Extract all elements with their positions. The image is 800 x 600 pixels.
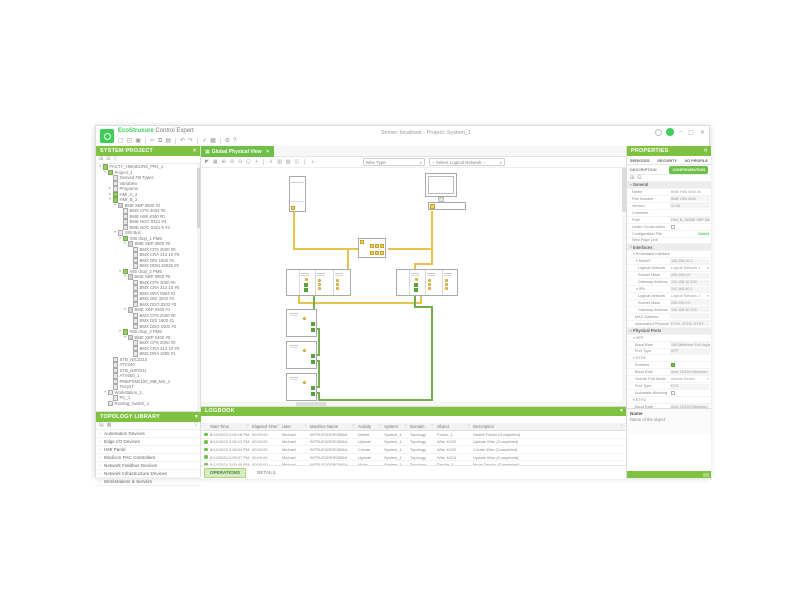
property-value: 192.168.40.100 bbox=[670, 307, 710, 312]
ethernet-wire[interactable] bbox=[431, 211, 433, 265]
library-item[interactable]: ›Network Fieldbus Devices bbox=[96, 462, 201, 470]
filter-icon[interactable]: ▽ bbox=[378, 424, 381, 429]
layout-icon[interactable]: ◫ bbox=[295, 159, 300, 166]
export-icon[interactable]: ⇓ bbox=[269, 159, 273, 166]
column-header[interactable]: Elapsed Time▽ bbox=[252, 424, 282, 429]
app-brand: EcoStruxure bbox=[118, 128, 154, 134]
io-channel[interactable] bbox=[445, 279, 448, 282]
logbook-cell: WTRUS3GER0506A bbox=[310, 439, 358, 444]
property-row[interactable]: NameBME H58 4040 #0 bbox=[627, 189, 711, 196]
property-row[interactable]: ▾SFP bbox=[627, 335, 711, 342]
logbook-row[interactable]: 8/14/2024 2:06:18 PM00:00:00MichaelWTRUS… bbox=[201, 431, 626, 439]
property-row[interactable]: PathHMI_B_2\BME XBP 0800 #2 bbox=[627, 217, 711, 224]
chevron-down-icon: ▾ bbox=[707, 377, 709, 381]
logbook-cell: Create bbox=[358, 447, 384, 452]
logbook-column-headers: Start Time▽Elapsed Time▽User▽Machine Nam… bbox=[201, 423, 626, 431]
ethernet-wire[interactable] bbox=[293, 210, 295, 250]
io-channel[interactable] bbox=[428, 287, 431, 290]
logbook-cell: Michael bbox=[282, 447, 310, 452]
print-icon[interactable]: ▥ bbox=[277, 159, 282, 166]
property-label: Physical Ports bbox=[633, 328, 661, 333]
filter-icon[interactable]: ▽ bbox=[431, 424, 434, 429]
logbook-collapse-icon[interactable]: ▾ bbox=[620, 407, 623, 416]
info-status-icon bbox=[204, 433, 208, 437]
rio-port[interactable] bbox=[414, 283, 418, 287]
tree-expander-icon[interactable]: ▾ bbox=[123, 335, 127, 341]
property-value: 192.168.10.1 bbox=[670, 259, 710, 264]
rio-ring-wire[interactable] bbox=[431, 306, 433, 401]
library-item[interactable]: ›Network Infrastructure Devices bbox=[96, 470, 201, 478]
column-header[interactable]: Machine Name▽ bbox=[310, 424, 358, 429]
schneider-logo-icon bbox=[100, 129, 114, 143]
minimize-button[interactable]: – bbox=[678, 129, 683, 135]
library-item[interactable]: ›Edge I/O Devices bbox=[96, 438, 201, 446]
logical-network-label: -- Select Logical Network -- bbox=[432, 160, 486, 165]
logbook-cell: Topology bbox=[410, 447, 437, 452]
library-toolbar: ▤▦▽ bbox=[96, 422, 201, 430]
x80-drop-1[interactable] bbox=[286, 309, 317, 337]
rack-main-b[interactable] bbox=[396, 269, 458, 296]
properties-tab-security[interactable]: SECURITY bbox=[657, 158, 677, 163]
copy-image-icon[interactable]: ▧ bbox=[286, 159, 291, 166]
filter-icon[interactable]: ▽ bbox=[194, 422, 198, 429]
tree-expander-icon[interactable]: ▾ bbox=[103, 170, 107, 176]
io-channel[interactable] bbox=[336, 287, 339, 290]
logbook-row[interactable]: 8/14/2024 2:06:12 PM00:00:00MichaelWTRUS… bbox=[201, 439, 626, 447]
library-item[interactable]: ›Workstations & Servers bbox=[96, 478, 201, 486]
ethernet-wire[interactable] bbox=[347, 248, 349, 269]
redo-icon[interactable]: ↷ bbox=[188, 137, 193, 145]
filter-icon[interactable]: ▽ bbox=[352, 424, 355, 429]
library-panel-title: TOPOLOGY LIBRARY bbox=[100, 414, 160, 420]
tree-expander-icon[interactable]: ▾ bbox=[98, 164, 102, 170]
ethernet-wire[interactable] bbox=[414, 263, 433, 265]
tree-expander-icon[interactable]: ▾ bbox=[118, 269, 122, 275]
logbook-tabs: OPERATIONSDETAILS bbox=[201, 465, 626, 479]
library-item[interactable]: ›HMI Panel bbox=[96, 446, 201, 454]
ethernet-wire[interactable] bbox=[420, 296, 422, 304]
maximize-button[interactable]: ▢ bbox=[687, 129, 695, 136]
properties-grid: ▾GeneralNameBME H58 4040 #0Part NumberBM… bbox=[627, 182, 711, 408]
module-label bbox=[290, 313, 298, 314]
service-port[interactable] bbox=[415, 278, 418, 281]
zoom-100-icon[interactable]: ⊙ bbox=[238, 159, 242, 166]
chevron-down-icon: ▾ bbox=[707, 294, 709, 298]
column-header[interactable]: System▽ bbox=[384, 424, 410, 429]
rio-ring-wire[interactable] bbox=[320, 399, 433, 401]
property-value: ETH bbox=[670, 384, 710, 389]
topology-canvas[interactable] bbox=[201, 168, 626, 406]
rio-port[interactable] bbox=[311, 392, 315, 396]
select-link[interactable]: Select bbox=[670, 231, 710, 236]
logbook-cell: Update Wire (Completed) bbox=[473, 455, 626, 460]
save-icon[interactable]: ▣ bbox=[135, 137, 141, 145]
column-header[interactable]: Domain▽ bbox=[410, 424, 437, 429]
zoom-fit-icon[interactable]: ◱ bbox=[246, 159, 251, 166]
device-face-line bbox=[291, 182, 304, 183]
io-channel[interactable] bbox=[445, 283, 448, 286]
module-label bbox=[290, 345, 298, 346]
zoom-out-icon[interactable]: ⊖ bbox=[230, 159, 234, 166]
switch-port[interactable] bbox=[380, 251, 384, 255]
logbook-cell: Update Wire (Completed) bbox=[473, 439, 626, 444]
logbook-cell: Wire 4/209 bbox=[437, 447, 473, 452]
properties-tab-services[interactable]: SERVICES bbox=[630, 158, 650, 163]
properties-tab-i-o-profile[interactable]: I/O PROFILE bbox=[685, 158, 708, 163]
window-title: Server: localhost - Project: System_1 bbox=[296, 130, 556, 136]
property-row[interactable]: Logical NetworkLogical Network 1▾ bbox=[627, 265, 711, 272]
checkbox-checked[interactable] bbox=[671, 363, 675, 367]
wire-type-label: Wire Type bbox=[366, 160, 386, 165]
system-panel-header: SYSTEM PROJECT ✕ bbox=[96, 146, 200, 156]
app-title: EcoStruxure Control Expert bbox=[118, 128, 194, 134]
properties-footer-bar bbox=[627, 471, 711, 478]
rio-ring-wire[interactable] bbox=[318, 328, 320, 356]
ethernet-wire[interactable] bbox=[298, 296, 300, 302]
service-port[interactable] bbox=[303, 349, 306, 352]
library-item-label: Modicon PAC Controllers bbox=[104, 454, 155, 461]
module-label bbox=[317, 273, 325, 274]
switch-port[interactable] bbox=[370, 251, 374, 255]
center-column: ▦ Global Physical View ✕ ◤▦⊕⊖⊙◱+⇓▥▧◫⊥ Wi… bbox=[201, 146, 626, 478]
properties-close-icon[interactable]: ✕ bbox=[703, 146, 708, 156]
properties-panel: PROPERTIES ✕ SERVICESSECURITYI/O PROFILE… bbox=[626, 146, 711, 478]
properties-header: PROPERTIES ✕ bbox=[627, 146, 711, 156]
library-item[interactable]: ›Modicon PAC Controllers bbox=[96, 454, 201, 462]
logbook-cell: Topology bbox=[410, 432, 437, 437]
property-row[interactable]: ▾MainIP192.168.10.1 bbox=[627, 258, 711, 265]
close-button[interactable]: ✕ bbox=[699, 129, 706, 136]
property-value: 01.00 bbox=[670, 203, 710, 208]
settings-icon[interactable]: ⚙ bbox=[225, 137, 230, 145]
property-value[interactable] bbox=[670, 238, 710, 243]
tree-expander-icon[interactable]: ▾ bbox=[113, 230, 117, 236]
property-row[interactable]: ▾ETH1 bbox=[627, 355, 711, 362]
logbook-cell: Update bbox=[358, 439, 384, 444]
notifications-icon[interactable] bbox=[655, 129, 662, 136]
property-row[interactable]: ▾ETH2 bbox=[627, 397, 711, 404]
tab-description[interactable]: DESCRIPTION bbox=[630, 167, 657, 172]
info-status-icon bbox=[204, 448, 208, 452]
ethernet-switch[interactable] bbox=[358, 238, 386, 258]
logical-network-combo[interactable]: -- Select Logical Network -- ▾ bbox=[429, 158, 505, 166]
property-value[interactable]: Logical Network 1▾ bbox=[670, 266, 710, 271]
property-help-title: Name bbox=[630, 411, 708, 416]
logbook-panel: LOGBOOK ▾ Start Time▽Elapsed Time▽User▽M… bbox=[201, 406, 626, 478]
topology-tab-icon: ▦ bbox=[205, 149, 210, 155]
logbook-cell: Michael bbox=[282, 432, 310, 437]
property-row[interactable]: Port TypeETH bbox=[627, 383, 711, 390]
io-channel[interactable] bbox=[318, 283, 321, 286]
logbook-cell: System_1 bbox=[384, 439, 410, 444]
property-value: 192.168.40.1 bbox=[670, 287, 710, 292]
property-row[interactable]: Comment bbox=[627, 210, 711, 217]
footer-chip[interactable] bbox=[703, 473, 709, 477]
io-channel[interactable] bbox=[318, 287, 321, 290]
system-panel-title: SYSTEM PROJECT bbox=[100, 148, 153, 154]
service-port[interactable] bbox=[303, 381, 306, 384]
tab-configuration[interactable]: CONFIGURATION bbox=[669, 166, 708, 174]
system-panel-close-icon[interactable]: ✕ bbox=[192, 146, 197, 156]
tree-scrollbar[interactable] bbox=[197, 164, 200, 411]
chevron-down-icon: ▾ bbox=[500, 160, 502, 165]
logbook-cell: Folder_1 bbox=[437, 432, 473, 437]
canvas-tab-label: Global Physical View bbox=[212, 149, 262, 155]
engineering-workstation-base[interactable] bbox=[428, 202, 466, 210]
property-row[interactable]: Logical NetworkLogical Network 2▾ bbox=[627, 293, 711, 300]
logbook-cell: Wire 4/209 bbox=[437, 439, 473, 444]
column-header[interactable]: User▽ bbox=[282, 424, 310, 429]
logbook-cell: 00:00:00 bbox=[252, 447, 282, 452]
property-row[interactable]: Subnet Mask255.255.0.0 bbox=[627, 300, 711, 307]
logbook-cell: 8/14/2024 2:05:57 PM bbox=[210, 455, 252, 460]
column-header[interactable]: Start Time▽ bbox=[210, 424, 252, 429]
logbook-cell: 8/14/2024 2:06:18 PM bbox=[210, 432, 252, 437]
column-header[interactable]: Object▽ bbox=[437, 424, 473, 429]
filter-icon[interactable]: ▽ bbox=[113, 156, 117, 163]
checkbox-unchecked[interactable] bbox=[671, 391, 675, 395]
logbook-cell: System_1 bbox=[384, 432, 410, 437]
property-value[interactable]: Logical Network 2▾ bbox=[670, 293, 710, 298]
project-tree: ▾FACTY_HMI4EURS_PRJ_1▾Project_1Derived F… bbox=[96, 164, 197, 411]
pan-icon[interactable]: + bbox=[255, 159, 258, 166]
build-icon[interactable]: ▦ bbox=[210, 137, 216, 145]
logbook-cell: 8/14/2024 2:06:04 PM bbox=[210, 447, 252, 452]
service-port[interactable] bbox=[303, 317, 306, 320]
filter-icon[interactable]: ▽ bbox=[620, 424, 623, 429]
module-label bbox=[411, 273, 419, 274]
app-name: Control Expert bbox=[155, 128, 193, 134]
property-section[interactable]: ▾General bbox=[627, 182, 711, 189]
property-value: Auto 10/100 Mbits/sec bbox=[670, 370, 710, 375]
property-row[interactable]: Subnet Mask255.255.0.0 bbox=[627, 272, 711, 279]
property-row[interactable]: Port TypeSFP bbox=[627, 349, 711, 356]
property-row[interactable]: Web Page Link bbox=[627, 238, 711, 245]
property-row[interactable]: Enabled bbox=[627, 362, 711, 369]
logbook-cell: Michael bbox=[282, 455, 310, 460]
view-list-icon[interactable]: ▤ bbox=[99, 422, 104, 429]
property-value bbox=[670, 314, 710, 319]
io-channel[interactable] bbox=[428, 279, 431, 282]
chevron-down-icon: ▾ bbox=[707, 266, 709, 270]
wire-type-combo[interactable]: Wire Type ▾ bbox=[363, 158, 425, 166]
property-row[interactable]: ▾Embedded Interface bbox=[627, 251, 711, 258]
property-section[interactable]: ▾Interfaces bbox=[627, 244, 711, 251]
library-panel-header: TOPOLOGY LIBRARY ▾ bbox=[96, 412, 201, 422]
property-row[interactable]: Under Construction bbox=[627, 224, 711, 231]
expand-all-icon[interactable]: ⊞ bbox=[99, 156, 103, 163]
logbook-cell: Create Wire (Completed) bbox=[473, 447, 626, 452]
property-value: 100 Mbits/sec Full duplex bbox=[670, 342, 710, 347]
module-label bbox=[335, 273, 343, 274]
tree-scrollbar-thumb[interactable] bbox=[197, 168, 200, 228]
tab-close-icon[interactable]: ✕ bbox=[266, 149, 270, 155]
rio-ring-wire[interactable] bbox=[318, 360, 320, 388]
switch-port[interactable] bbox=[360, 240, 364, 244]
tree-expander-icon[interactable]: ▾ bbox=[103, 390, 107, 396]
filter-icon[interactable]: ▽ bbox=[277, 424, 280, 429]
module-label bbox=[290, 377, 298, 378]
io-channel[interactable] bbox=[445, 287, 448, 290]
switch-port[interactable] bbox=[375, 244, 379, 248]
property-row[interactable]: MAC Address bbox=[627, 314, 711, 321]
device-face-line bbox=[291, 201, 304, 202]
collapse-all-icon[interactable]: ⊟ bbox=[106, 156, 110, 163]
rio-ring-wire[interactable] bbox=[313, 296, 315, 309]
logbook-cell: 00:00:00 bbox=[252, 432, 282, 437]
pointer-icon[interactable]: ◤ bbox=[205, 159, 209, 166]
ethernet-wire[interactable] bbox=[388, 248, 433, 250]
properties-toolbar: ⊞⊟ bbox=[627, 175, 711, 182]
system-panel-toolbar: ⊞⊟▽ bbox=[96, 156, 200, 164]
logbook-tab-details[interactable]: DETAILS bbox=[252, 469, 281, 477]
property-section[interactable]: ▾Physical Ports bbox=[627, 328, 711, 335]
library-collapse-icon[interactable]: ▾ bbox=[195, 412, 198, 422]
properties-subtabs: DESCRIPTION CONFIGURATION bbox=[627, 165, 711, 175]
logbook-title: LOGBOOK bbox=[205, 408, 235, 414]
filter-icon[interactable]: ▽ bbox=[246, 424, 249, 429]
logbook-tab-operations[interactable]: OPERATIONS bbox=[204, 468, 246, 478]
zoom-in-icon[interactable]: ⊕ bbox=[222, 159, 226, 166]
tab-global-physical-view[interactable]: ▦ Global Physical View ✕ bbox=[201, 146, 274, 157]
left-column: SYSTEM PROJECT ✕ ⊞⊟▽ ▾FACTY_HMI4EURS_PRJ… bbox=[96, 146, 201, 478]
column-header[interactable]: Activity▽ bbox=[358, 424, 384, 429]
switch-port[interactable] bbox=[370, 244, 374, 248]
tree-expander-icon[interactable]: ▾ bbox=[118, 236, 122, 242]
grid-icon[interactable]: ▦ bbox=[213, 159, 218, 166]
x80-drop-3[interactable] bbox=[286, 373, 317, 401]
logbook-row[interactable]: 8/14/2024 2:06:04 PM00:00:00MichaelWTRUS… bbox=[201, 446, 626, 454]
property-row[interactable]: Secure Port ModeAccess Device▾ bbox=[627, 376, 711, 383]
new-icon[interactable]: ▢ bbox=[118, 137, 124, 145]
column-header[interactable]: Description▽ bbox=[473, 424, 626, 429]
property-row[interactable]: Configuration FileSelect bbox=[627, 231, 711, 238]
ethernet-wire[interactable] bbox=[298, 302, 422, 304]
property-row[interactable]: Gateway Address192.168.40.100 bbox=[627, 307, 711, 314]
io-channel[interactable] bbox=[336, 279, 339, 282]
property-value[interactable] bbox=[670, 210, 710, 215]
rio-port[interactable] bbox=[311, 386, 315, 390]
x80-drop-2[interactable] bbox=[286, 341, 317, 369]
library-item-label: Automation Devices bbox=[104, 430, 145, 437]
io-channel[interactable] bbox=[318, 279, 321, 282]
logbook-cell: 00:00:00 bbox=[252, 455, 282, 460]
paste-icon[interactable]: ▤ bbox=[165, 137, 171, 145]
hierarchy-icon[interactable]: ⊥ bbox=[310, 159, 314, 166]
tree-expander-icon[interactable]: ▾ bbox=[123, 241, 127, 247]
property-row[interactable]: Baud RateAuto 10/100 Mbits/sec bbox=[627, 369, 711, 376]
logbook-cell: Delete bbox=[358, 432, 384, 437]
property-row[interactable]: Gateway Address192.168.10.100 bbox=[627, 279, 711, 286]
logbook-cell: Michael bbox=[282, 439, 310, 444]
io-channel[interactable] bbox=[428, 283, 431, 286]
service-port[interactable] bbox=[305, 278, 308, 281]
module-label bbox=[427, 273, 435, 274]
checkbox-unchecked[interactable] bbox=[671, 225, 675, 229]
property-row[interactable]: Part NumberBME H58 4040 bbox=[627, 196, 711, 203]
rio-port[interactable] bbox=[414, 288, 418, 292]
collapse-all-icon[interactable]: ⊟ bbox=[637, 175, 641, 182]
undo-icon[interactable]: ↶ bbox=[180, 137, 185, 145]
quick-access-toolbar: ▢◰▣✂⧉▤↶↷✓▦⚙? bbox=[118, 137, 237, 145]
tree-expander-icon[interactable]: ▾ bbox=[108, 197, 112, 203]
engineering-workstation-monitor[interactable] bbox=[425, 173, 457, 197]
copy-icon[interactable]: ⧉ bbox=[158, 137, 162, 145]
property-value: 192.168.10.100 bbox=[670, 280, 710, 285]
rio-port[interactable] bbox=[311, 322, 315, 326]
cut-icon[interactable]: ✂ bbox=[150, 137, 155, 145]
property-row[interactable]: Baud Rate100 Mbits/sec Full duplex bbox=[627, 342, 711, 349]
property-value[interactable]: BME H58 4040 #0 bbox=[670, 189, 710, 194]
switch-port[interactable] bbox=[380, 244, 384, 248]
property-row[interactable]: Associated Physical PortsETH1, ETH2, ETH… bbox=[627, 321, 711, 328]
tree-expander-icon[interactable]: ▾ bbox=[113, 203, 117, 209]
logbook-cell: Wire 4/214 bbox=[437, 455, 473, 460]
app-window: EcoStruxure Control Expert ▢◰▣✂⧉▤↶↷✓▦⚙? … bbox=[95, 125, 710, 477]
expand-all-icon[interactable]: ⊞ bbox=[630, 175, 634, 182]
logbook-cell: Delete Folder (Completed) bbox=[473, 432, 626, 437]
property-value: BME H58 4040 bbox=[670, 196, 710, 201]
filter-icon[interactable]: ▽ bbox=[304, 424, 307, 429]
filter-icon[interactable]: ▽ bbox=[404, 424, 407, 429]
library-item-label: Network Infrastructure Devices bbox=[104, 470, 167, 477]
library-item[interactable]: ›Automation Devices bbox=[96, 430, 201, 438]
tree-item[interactable]: Routing_Switch_1 bbox=[96, 401, 197, 407]
rio-port[interactable] bbox=[304, 288, 308, 292]
switch-port[interactable] bbox=[375, 251, 379, 255]
logbook-cell: 00:00:00 bbox=[252, 439, 282, 444]
validate-icon[interactable]: ✓ bbox=[202, 137, 207, 145]
logbook-cell: WTRUS3GER0506A bbox=[310, 455, 358, 460]
property-label: SFP bbox=[636, 336, 711, 340]
rio-port[interactable] bbox=[311, 354, 315, 358]
library-panel: TOPOLOGY LIBRARY ▾ ▤▦▽ ›Automation Devic… bbox=[96, 411, 201, 478]
property-row[interactable]: Version01.00 bbox=[627, 203, 711, 210]
property-value: HMI_B_2\BME XBP 0800 #2 bbox=[670, 217, 710, 222]
property-row[interactable]: ▾IPA192.168.40.1 bbox=[627, 286, 711, 293]
user-avatar[interactable] bbox=[666, 128, 674, 136]
rio-port[interactable] bbox=[311, 360, 315, 364]
ethernet-wire[interactable] bbox=[293, 248, 367, 250]
logbook-row[interactable]: 8/14/2024 2:05:57 PM00:00:00MichaelWTRUS… bbox=[201, 454, 626, 462]
hmi-panel-device[interactable] bbox=[289, 176, 306, 212]
property-value[interactable]: Access Device▾ bbox=[670, 377, 710, 382]
monitor-screen bbox=[428, 176, 454, 194]
library-item-label: Edge I/O Devices bbox=[104, 438, 140, 445]
tree-expander-icon[interactable]: ▾ bbox=[123, 307, 127, 313]
rack-main-a[interactable] bbox=[286, 269, 351, 296]
window-controls: – ▢ ✕ bbox=[655, 128, 706, 136]
view-grid-icon[interactable]: ▦ bbox=[107, 422, 112, 429]
open-icon[interactable]: ◰ bbox=[127, 137, 133, 145]
tree-expander-icon[interactable]: ▾ bbox=[123, 274, 127, 280]
rio-ring-wire[interactable] bbox=[318, 392, 320, 401]
filter-icon[interactable]: ▽ bbox=[467, 424, 470, 429]
canvas-toolbar: ◤▦⊕⊖⊙◱+⇓▥▧◫⊥ Wire Type ▾ -- Select Logic… bbox=[201, 157, 626, 168]
tree-item-label: Routing_Switch_1 bbox=[115, 401, 150, 407]
io-channel[interactable] bbox=[336, 283, 339, 286]
help-icon[interactable]: ? bbox=[233, 137, 236, 145]
rio-port[interactable] bbox=[311, 328, 315, 332]
logbook-cell: Update bbox=[358, 455, 384, 460]
library-item-label: Workstations & Servers bbox=[104, 478, 152, 485]
rio-port[interactable] bbox=[304, 283, 308, 287]
property-row[interactable]: Automatic Blocking bbox=[627, 390, 711, 397]
ethernet-port[interactable] bbox=[430, 204, 435, 209]
ethernet-port[interactable] bbox=[291, 206, 295, 210]
tree-expander-icon[interactable]: ▾ bbox=[118, 329, 122, 335]
property-value: SFP bbox=[670, 349, 710, 354]
